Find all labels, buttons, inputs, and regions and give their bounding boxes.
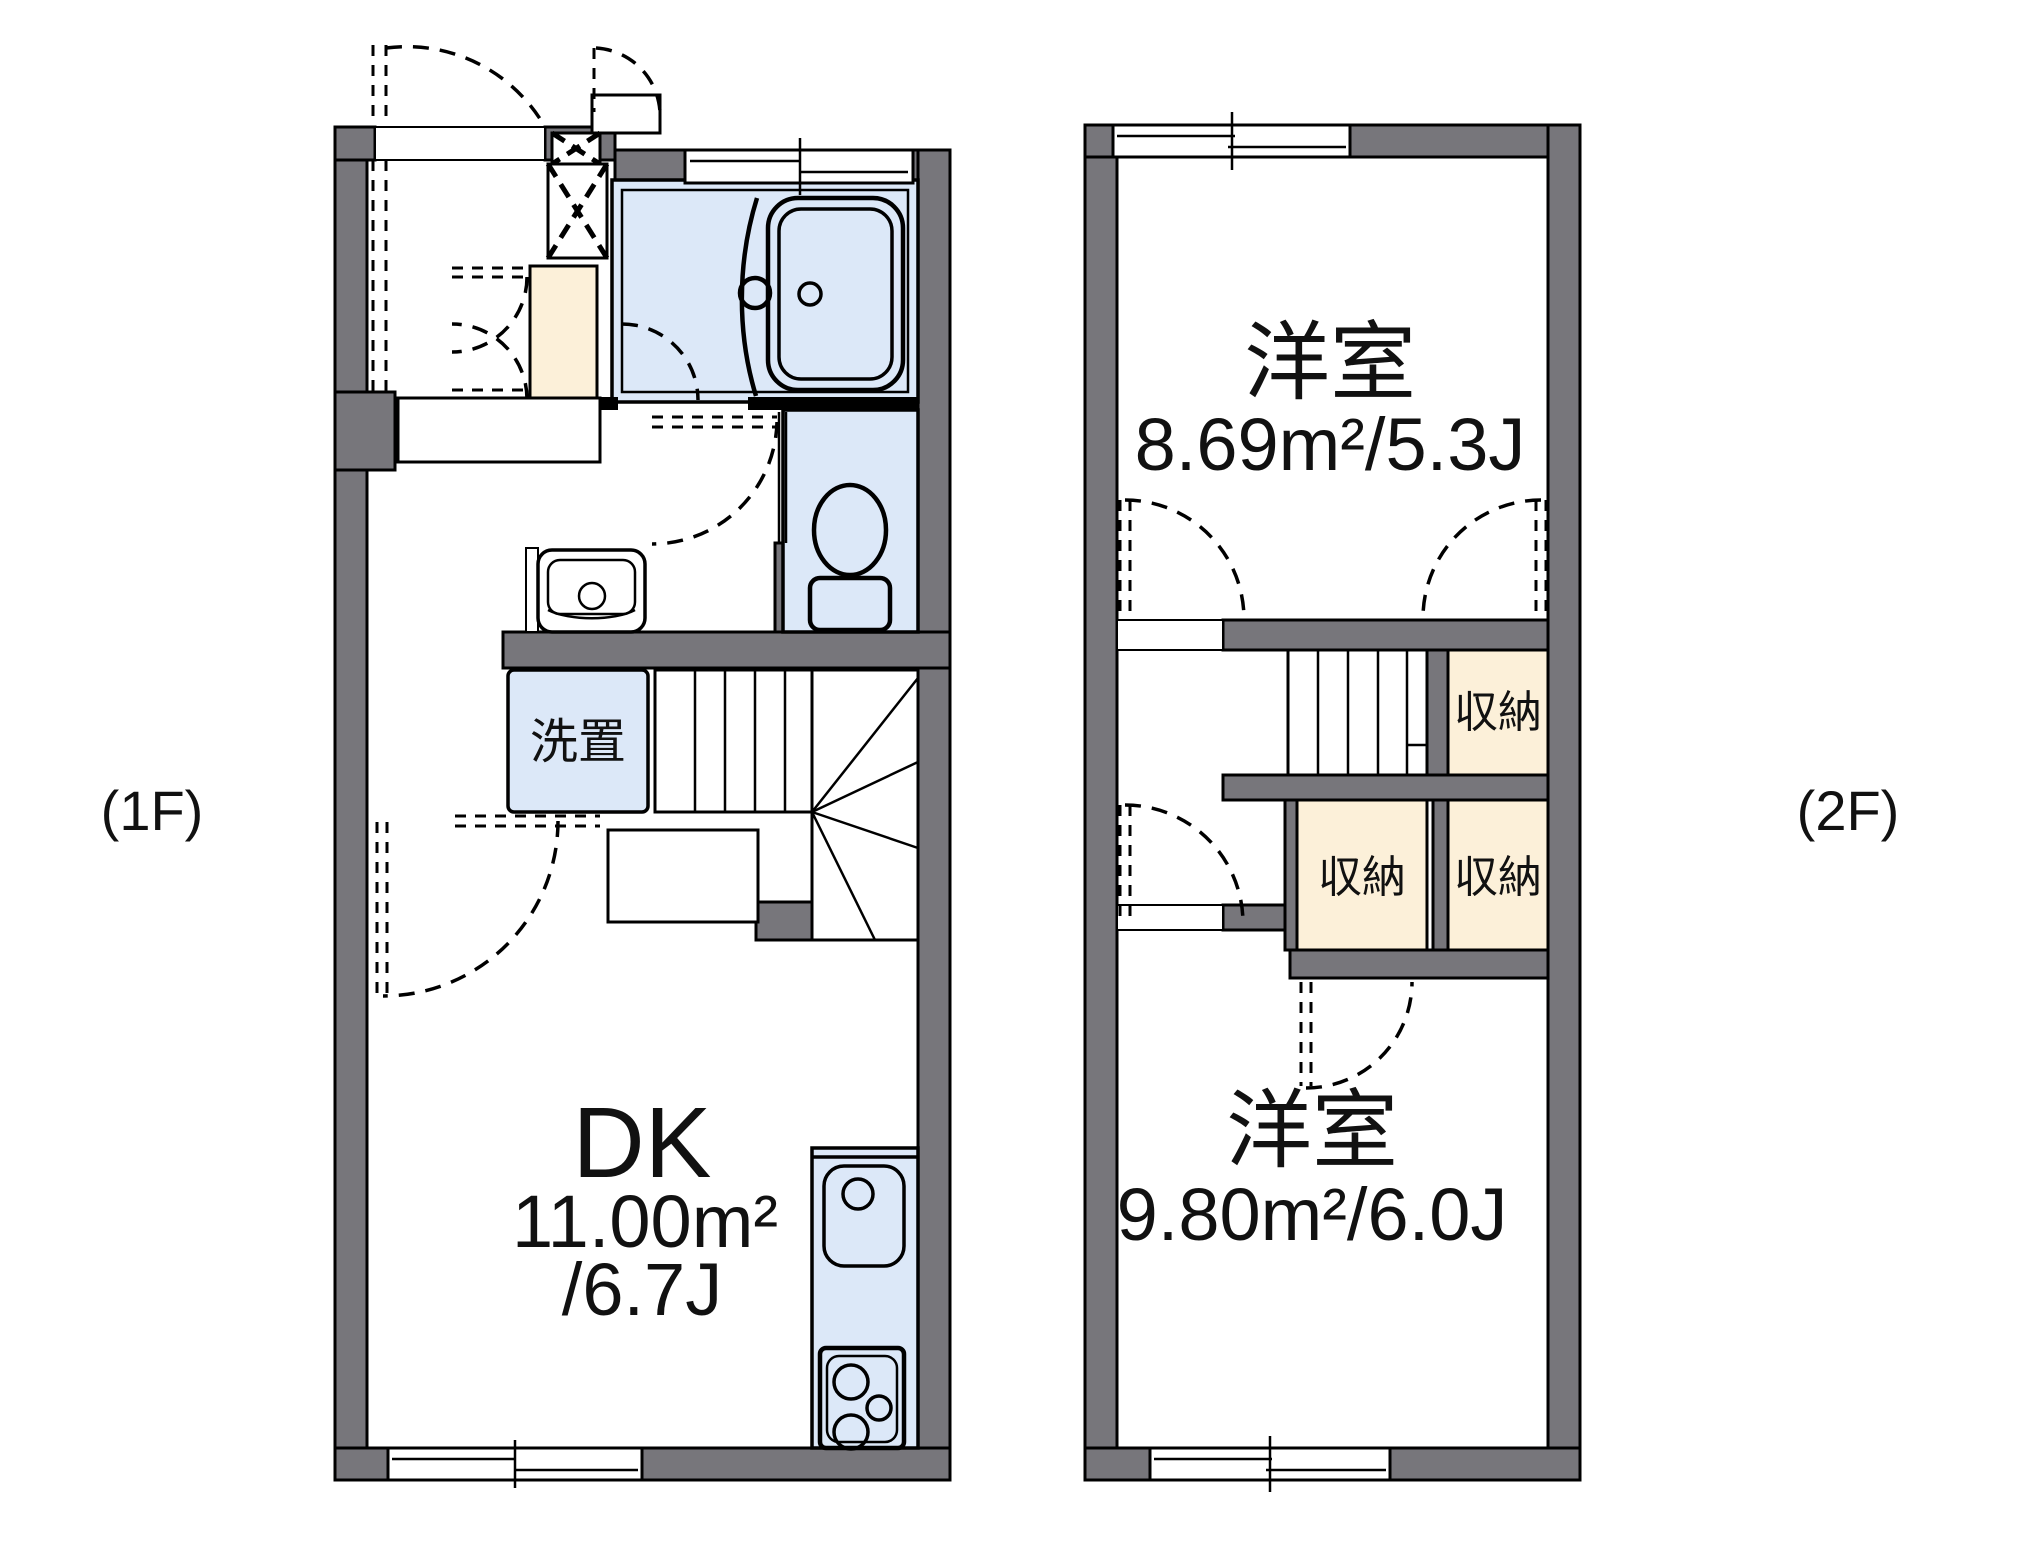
1f-bottom-wall-b xyxy=(642,1448,950,1480)
2f-top-wall-b xyxy=(1350,125,1580,157)
closet-mid-label: 収納 xyxy=(1318,853,1406,902)
2f-stairwell xyxy=(1288,650,1427,775)
floor2-tag: (2F) xyxy=(1797,779,1900,842)
washbasin xyxy=(526,548,645,632)
2f-mid-wall-lower xyxy=(1223,775,1548,800)
bedroom-top-door-swing xyxy=(1125,500,1244,619)
1f-top-wall-c xyxy=(615,150,685,183)
closet-door-swing-lower xyxy=(452,324,527,399)
2f-closet-right: 収納 xyxy=(1448,800,1548,950)
stair-run xyxy=(655,670,812,812)
1f-toilet xyxy=(779,410,918,632)
2f-bottom-wall-a xyxy=(1085,1448,1150,1480)
laundry-space: 洗置 xyxy=(508,670,648,812)
dk-tatami-label: /6.7J xyxy=(562,1248,722,1331)
1f-top-wall-a xyxy=(335,127,375,160)
2f-bottom-wall-b xyxy=(1390,1448,1580,1480)
1f-stair-wall-stub xyxy=(756,902,812,940)
1f-mid-wall xyxy=(503,632,950,668)
1f-stairs xyxy=(608,670,918,940)
dk-door-swing xyxy=(383,821,558,996)
genkan-step xyxy=(398,398,600,462)
entrance-closet xyxy=(452,266,597,400)
floor1-tag: (1F) xyxy=(101,779,204,842)
closet-top-door-swing xyxy=(1423,500,1541,618)
bedroom-top-area: 8.69m²/5.3J xyxy=(1135,403,1526,486)
1f-bottom-window xyxy=(388,1440,642,1488)
2f-stair-divider-wall xyxy=(1427,650,1448,775)
2f-bedroom-top: 洋室 8.69m²/5.3J xyxy=(1117,315,1546,650)
2f-top-wall-a xyxy=(1085,125,1113,157)
closet-mid-door-swing xyxy=(1306,982,1412,1088)
floor-2f-plan: 洋室 8.69m²/5.3J 収納 収納 xyxy=(1085,112,1580,1492)
closet-door-swing-upper xyxy=(452,277,527,352)
closet-right-label: 収納 xyxy=(1454,853,1542,902)
closet-top-label: 収納 xyxy=(1454,688,1542,737)
1f-unit-bath xyxy=(600,138,918,410)
laundry-label: 洗置 xyxy=(530,716,626,769)
2f-closet-top: 収納 xyxy=(1448,650,1548,775)
2f-closet-divider-wall xyxy=(1433,800,1448,950)
2f-hall-room-stub xyxy=(1223,905,1285,930)
stair-landing xyxy=(608,830,758,922)
2f-hall-closet-wall xyxy=(1285,800,1297,950)
entrance-door-slab xyxy=(592,95,660,133)
floorplan-svg: 洗置 DK 11.00m² /6.7J xyxy=(0,0,2031,1543)
washroom-door-swing xyxy=(652,422,777,544)
closet-1f xyxy=(530,266,597,400)
entrance-opening xyxy=(375,127,545,160)
kitchen-unit xyxy=(812,1148,918,1449)
bedroom-top-label: 洋室 xyxy=(1244,315,1416,411)
floorplan-canvas: 洗置 DK 11.00m² /6.7J xyxy=(0,0,2031,1543)
door-threshold xyxy=(1117,620,1223,650)
1f-left-wall xyxy=(335,127,367,1480)
2f-left-wall xyxy=(1085,125,1117,1480)
2f-right-wall xyxy=(1548,125,1580,1480)
bedroom-bottom-label: 洋室 xyxy=(1226,1083,1398,1179)
basin-drain-icon xyxy=(579,583,605,609)
2f-closet-mid: 収納 xyxy=(1297,800,1427,950)
door-threshold xyxy=(1117,905,1223,930)
1f-bottom-wall-a xyxy=(335,1448,388,1480)
1f-right-wall xyxy=(918,150,950,1480)
entrance-door-swing xyxy=(386,47,545,127)
floor-1f-plan: 洗置 DK 11.00m² /6.7J xyxy=(335,45,950,1488)
toilet-room xyxy=(783,410,918,632)
pipe-space xyxy=(548,133,607,258)
2f-closet-bottom-wall xyxy=(1290,950,1548,978)
2f-mid-wall-upper xyxy=(1223,620,1548,650)
1f-entry-pillar xyxy=(335,392,395,470)
2f-bottom-window xyxy=(1150,1436,1390,1492)
bathroom xyxy=(612,180,918,402)
bedroom-bottom-area: 9.80m²/6.0J xyxy=(1117,1173,1508,1256)
2f-top-window xyxy=(1113,112,1350,170)
